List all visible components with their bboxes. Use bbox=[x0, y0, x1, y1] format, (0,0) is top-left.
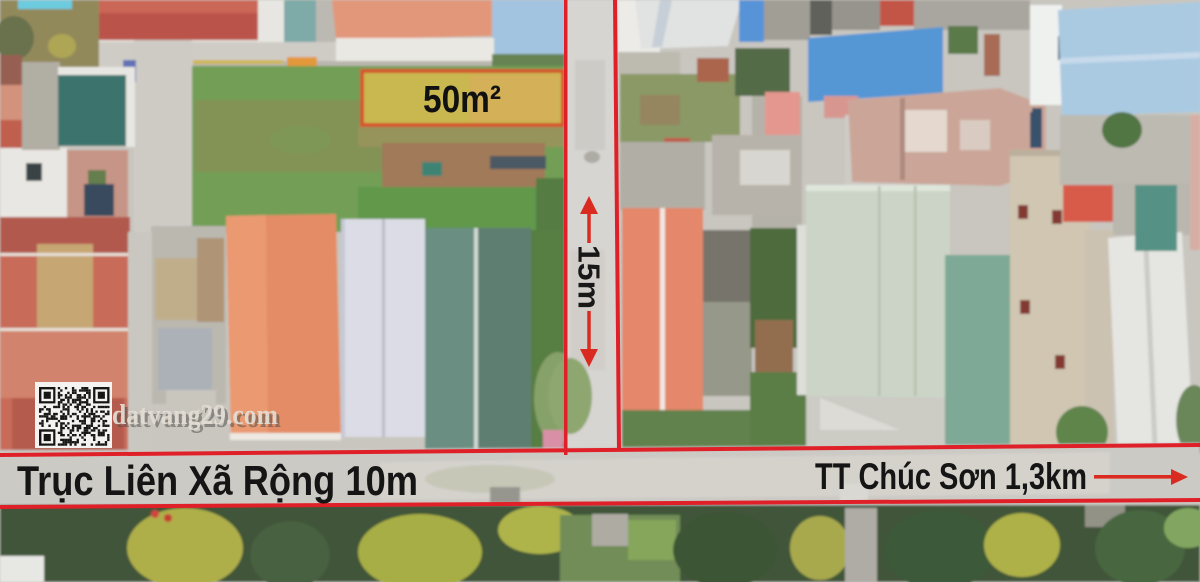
svg-text:15m: 15m bbox=[572, 245, 607, 309]
svg-text:50m²: 50m² bbox=[423, 79, 501, 121]
svg-text:datvang29.com: datvang29.com bbox=[112, 399, 278, 431]
svg-text:TT Chúc Sơn 1,3km: TT Chúc Sơn 1,3km bbox=[815, 456, 1087, 497]
svg-text:Trục Liên Xã Rộng 10m: Trục Liên Xã Rộng 10m bbox=[17, 457, 418, 504]
